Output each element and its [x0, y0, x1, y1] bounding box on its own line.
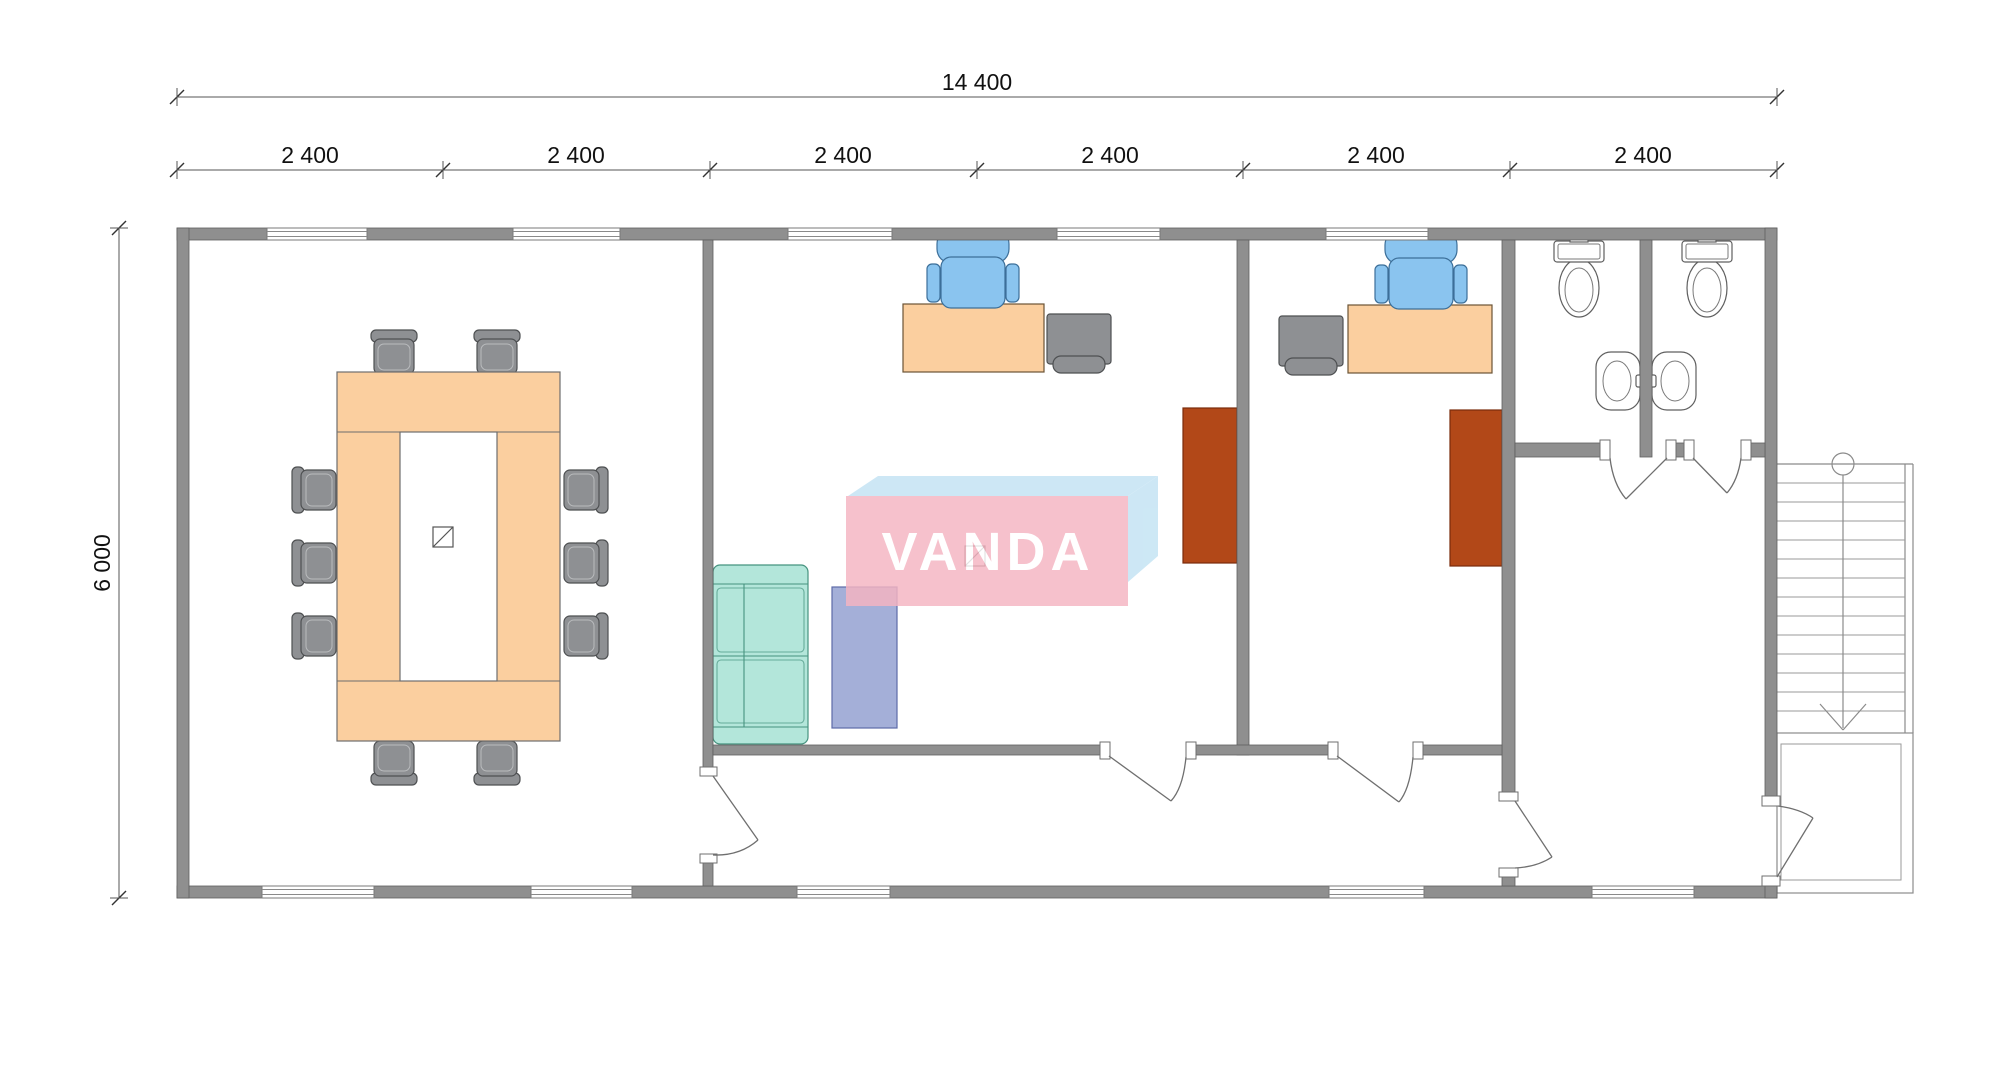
ceiling-symbol-icon [433, 527, 453, 547]
conference-chair [474, 741, 520, 785]
window [1592, 886, 1694, 898]
conference-table [337, 372, 560, 741]
dimension-segment-label: 2 400 [547, 142, 605, 168]
sofa [713, 565, 808, 744]
drawer-cabinet [1047, 314, 1111, 373]
window [267, 228, 367, 240]
conference-room [292, 330, 608, 785]
window [788, 228, 892, 240]
conference-chair [564, 613, 608, 659]
dimension-total-label: 14 400 [942, 69, 1012, 95]
logo-top-face [848, 476, 1158, 496]
conference-chair [292, 613, 336, 659]
door-office-2 [1328, 742, 1423, 802]
wall-bathroom-partition [1515, 443, 1600, 457]
door-bathroom-left [1600, 440, 1676, 499]
stair-treads [1777, 483, 1905, 711]
drawer-cabinet [1279, 316, 1343, 375]
conference-chair [564, 540, 608, 586]
wall-bathroom-divider [1640, 240, 1652, 457]
dimension-segment-label: 2 400 [1081, 142, 1139, 168]
dimension-segments-row: 2 400 2 400 2 400 2 400 2 400 2 400 [170, 142, 1784, 179]
bathroom-right [1644, 237, 1732, 410]
dimension-segment-label: 2 400 [1614, 142, 1672, 168]
dimension-height-label: 6 000 [89, 534, 115, 592]
wall-corridor [713, 745, 1100, 755]
office-chair [927, 230, 1019, 308]
toilet [1682, 237, 1732, 317]
office-chair [1375, 231, 1467, 309]
dimension-height: 6 000 [89, 221, 128, 905]
conference-chair [292, 540, 336, 586]
conference-chair [292, 467, 336, 513]
toilet [1554, 237, 1604, 317]
conference-chair [371, 330, 417, 374]
floor-plan-drawing: 14 400 2 400 2 400 2 400 2 400 2 400 2 4… [0, 0, 2000, 1076]
window [531, 886, 632, 898]
stair-landing [1777, 733, 1913, 893]
desk [903, 304, 1044, 372]
dimension-total-width: 14 400 [170, 69, 1784, 106]
window [1057, 228, 1160, 240]
door-conference [700, 767, 758, 863]
window [797, 886, 890, 898]
conference-chair [564, 467, 608, 513]
floor-plan-canvas: 14 400 2 400 2 400 2 400 2 400 2 400 2 4… [0, 0, 2000, 1076]
rug [832, 587, 897, 728]
dimension-segment-label: 2 400 [814, 142, 872, 168]
wardrobe [1183, 408, 1237, 563]
window [262, 886, 374, 898]
door-vestibule [1499, 792, 1552, 877]
staircase [1777, 453, 1913, 893]
dimension-segment-label: 2 400 [1347, 142, 1405, 168]
dimension-segment-label: 2 400 [281, 142, 339, 168]
desk [1348, 305, 1492, 373]
office-2 [1279, 231, 1502, 566]
wardrobe [1450, 410, 1502, 566]
vanda-logo: VANDA [846, 476, 1158, 606]
conference-chair [371, 741, 417, 785]
wall-bathroom-zone [1502, 240, 1515, 793]
bathroom-left [1554, 237, 1648, 410]
door-office-1 [1100, 742, 1196, 801]
stairs-direction-arrow [1820, 453, 1866, 730]
wall-right [1765, 228, 1777, 797]
conference-chair [474, 330, 520, 374]
window [1326, 228, 1428, 240]
window [1329, 886, 1424, 898]
logo-text: VANDA [882, 522, 1095, 582]
wall-conference [703, 240, 713, 768]
wall-offices [1237, 240, 1249, 755]
door-bathroom-right [1684, 440, 1751, 493]
wall-left [177, 228, 189, 898]
window [513, 228, 620, 240]
door-entrance [1762, 796, 1813, 886]
